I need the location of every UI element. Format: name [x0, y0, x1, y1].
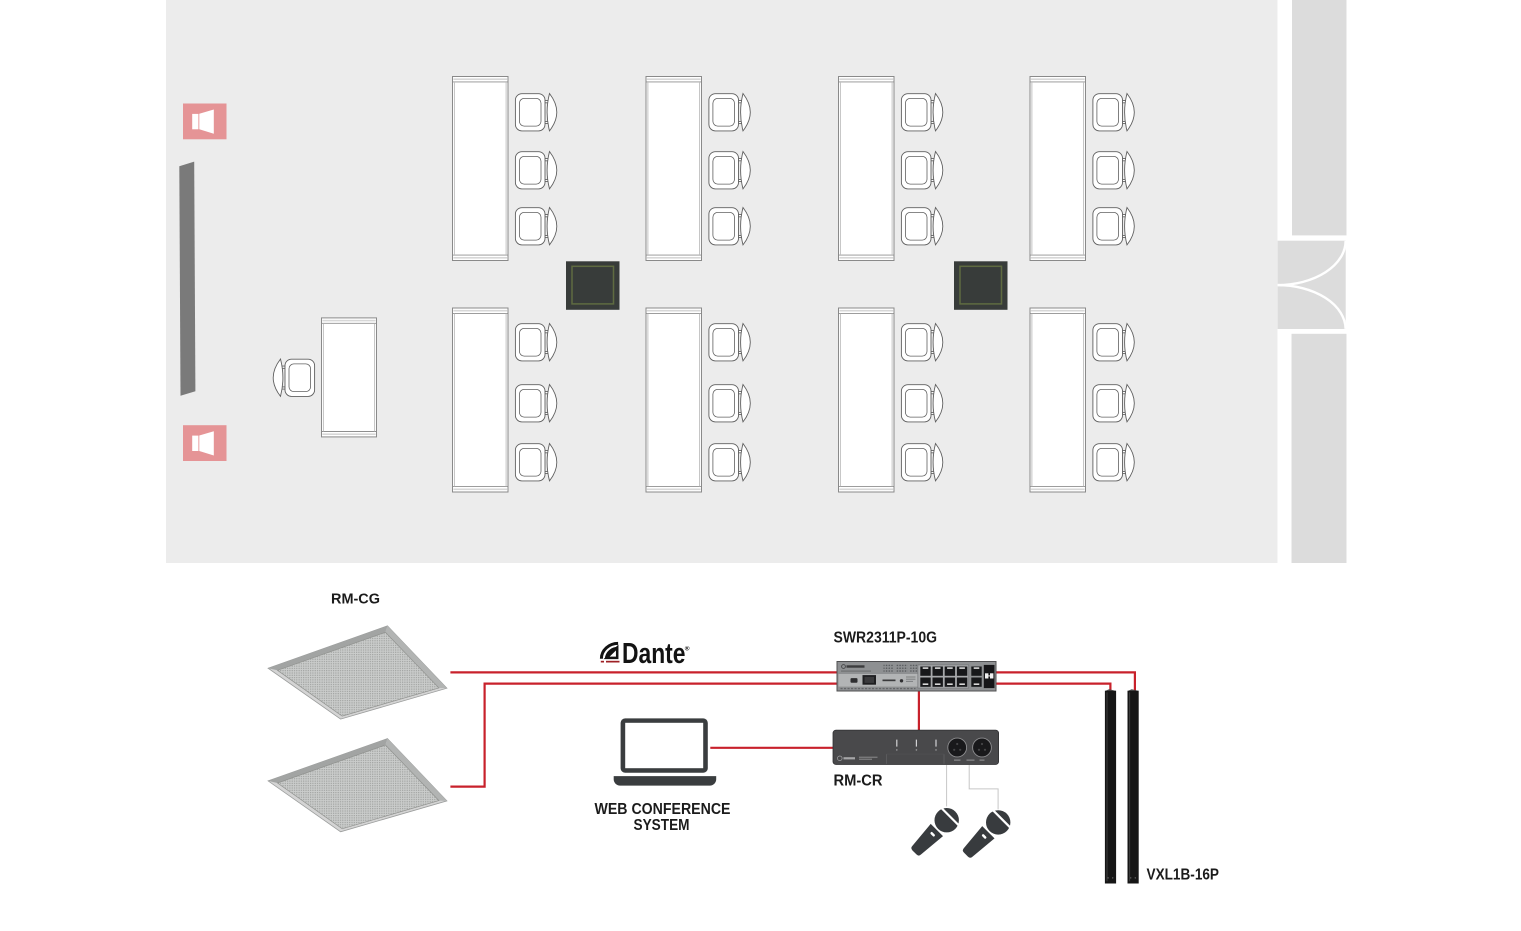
svg-text:VXL1B-16P: VXL1B-16P	[1147, 867, 1220, 884]
svg-text:RM-CR: RM-CR	[834, 773, 883, 790]
svg-text:Dante: Dante	[622, 638, 686, 670]
svg-text:®: ®	[685, 644, 690, 652]
svg-text:SYSTEM: SYSTEM	[634, 817, 690, 834]
svg-text:RM-CG: RM-CG	[331, 592, 380, 608]
svg-text:SWR2311P-10G: SWR2311P-10G	[834, 629, 938, 646]
svg-text:WEB CONFERENCE: WEB CONFERENCE	[595, 801, 731, 818]
